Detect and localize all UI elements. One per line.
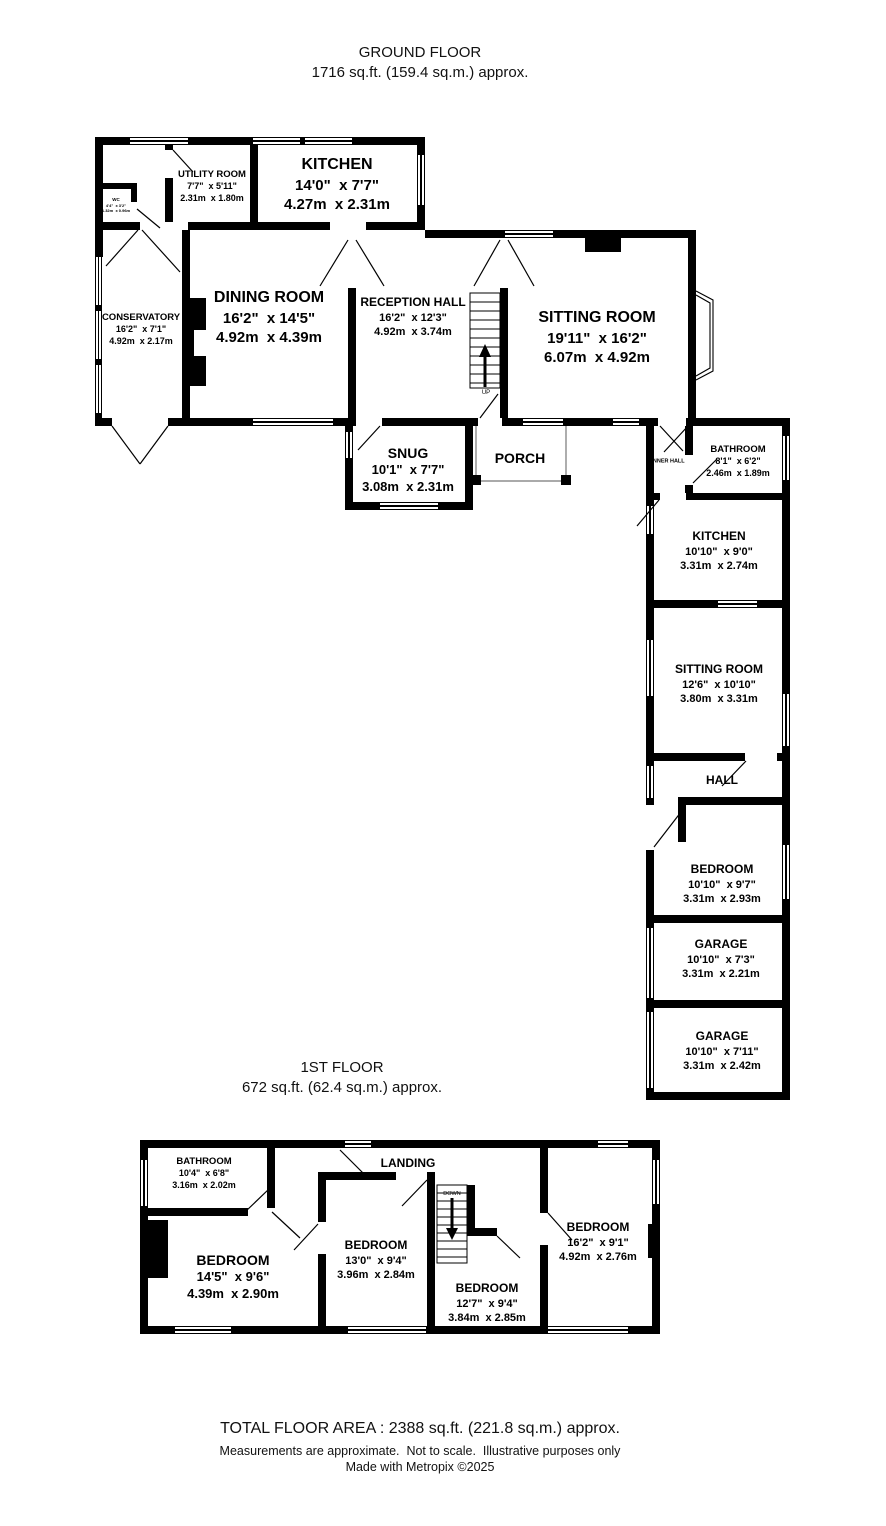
room-name: SITTING ROOM: [538, 308, 655, 329]
room-label-bathroom-ff: BATHROOM 10'4" x 6'8" 3.16m x 2.02m: [172, 1156, 236, 1192]
room-label-bedroom-ff-right: BEDROOM 16'2" x 9'1" 4.92m x 2.76m: [559, 1220, 637, 1264]
room-name: BEDROOM: [187, 1251, 279, 1269]
room-label-bedroom-ff-left: BEDROOM 14'5" x 9'6" 4.39m x 2.90m: [187, 1251, 279, 1303]
room-dims-metric: 3.31m x 2.21m: [682, 967, 760, 981]
room-dims-imperial: 14'5" x 9'6": [187, 1269, 279, 1286]
room-dims-imperial: 10'10" x 7'3": [682, 953, 760, 967]
room-dims-metric: 3.31m x 2.42m: [683, 1059, 761, 1073]
room-name: SITTING ROOM: [675, 662, 763, 678]
room-label-inner-hall: INNER HALL: [651, 458, 684, 465]
room-name: CONSERVATORY: [102, 312, 180, 324]
room-dims-metric: 3.08m x 2.31m: [362, 479, 454, 496]
staircase-up: [470, 293, 500, 388]
room-name: BEDROOM: [337, 1238, 415, 1254]
stairs-up-label: UP: [482, 390, 490, 396]
room-dims-metric: 2.31m x 1.80m: [178, 193, 246, 205]
room-name: PORCH: [495, 449, 546, 467]
room-dims-metric: 4.92m x 4.39m: [214, 328, 324, 348]
room-name: BATHROOM: [706, 444, 770, 456]
room-dims-metric: 4.92m x 2.17m: [102, 336, 180, 348]
room-name: SNUG: [362, 444, 454, 462]
disclaimer: Measurements are approximate. Not to sca…: [220, 1444, 621, 1458]
room-label-utility: UTILITY ROOM 7'7" x 5'11" 2.31m x 1.80m: [178, 169, 246, 205]
room-label-sitting-main: SITTING ROOM 19'11" x 16'2" 6.07m x 4.92…: [538, 308, 655, 368]
room-label-garage1: GARAGE 10'10" x 7'3" 3.31m x 2.21m: [682, 937, 760, 981]
room-name: GARAGE: [682, 937, 760, 953]
room-name: RECEPTION HALL: [360, 295, 465, 311]
room-label-porch: PORCH: [495, 449, 546, 467]
room-name: BEDROOM: [683, 862, 761, 878]
stairs-down-label: DOWN: [443, 1191, 460, 1197]
room-label-dining: DINING ROOM 16'2" x 14'5" 4.92m x 4.39m: [214, 288, 324, 348]
room-dims-imperial: 16'2" x 7'1": [102, 324, 180, 336]
bay-window: [696, 291, 713, 380]
room-dims-metric: 4.92m x 3.74m: [360, 325, 465, 339]
room-label-reception: RECEPTION HALL 16'2" x 12'3" 4.92m x 3.7…: [360, 295, 465, 339]
room-name: UTILITY ROOM: [178, 169, 246, 181]
room-label-conservatory: CONSERVATORY 16'2" x 7'1" 4.92m x 2.17m: [102, 312, 180, 348]
room-dims-metric: 4.92m x 2.76m: [559, 1250, 637, 1264]
room-dims-metric: 3.80m x 3.31m: [675, 692, 763, 706]
room-label-sitting-annex: SITTING ROOM 12'6" x 10'10" 3.80m x 3.31…: [675, 662, 763, 706]
room-label-bedroom-gf: BEDROOM 10'10" x 9'7" 3.31m x 2.93m: [683, 862, 761, 906]
room-dims-metric: 1.32m x 0.96m: [102, 208, 130, 213]
room-label-kitchen-main: KITCHEN 14'0" x 7'7" 4.27m x 2.31m: [284, 155, 390, 215]
room-dims-metric: 3.84m x 2.85m: [448, 1311, 526, 1325]
room-dims-imperial: 10'1" x 7'7": [362, 462, 454, 479]
room-label-bedroom-ff-bottom: BEDROOM 12'7" x 9'4" 3.84m x 2.85m: [448, 1281, 526, 1325]
room-dims-imperial: 16'2" x 9'1": [559, 1236, 637, 1250]
credit: Made with Metropix ©2025: [346, 1460, 495, 1474]
room-label-snug: SNUG 10'1" x 7'7" 3.08m x 2.31m: [362, 444, 454, 496]
room-dims-imperial: 7'7" x 5'11": [178, 181, 246, 193]
room-dims-imperial: 13'0" x 9'4": [337, 1254, 415, 1268]
room-name: BEDROOM: [448, 1281, 526, 1297]
room-label-garage2: GARAGE 10'10" x 7'11" 3.31m x 2.42m: [683, 1029, 761, 1073]
room-dims-imperial: 12'7" x 9'4": [448, 1297, 526, 1311]
room-dims-imperial: 19'11" x 16'2": [538, 329, 655, 349]
total-floor-area: TOTAL FLOOR AREA : 2388 sq.ft. (221.8 sq…: [220, 1420, 620, 1438]
room-name: BEDROOM: [559, 1220, 637, 1236]
floorplan: GROUND FLOOR 1716 sq.ft. (159.4 sq.m.) a…: [0, 0, 886, 1526]
room-name: INNER HALL: [651, 458, 684, 465]
room-dims-imperial: 16'2" x 12'3": [360, 311, 465, 325]
room-label-bedroom-ff-mid: BEDROOM 13'0" x 9'4" 3.96m x 2.84m: [337, 1238, 415, 1282]
room-name: GARAGE: [683, 1029, 761, 1045]
room-dims-imperial: 10'4" x 6'8": [172, 1168, 236, 1180]
room-label-landing: LANDING: [381, 1156, 436, 1172]
room-name: BATHROOM: [172, 1156, 236, 1168]
room-dims-metric: 2.46m x 1.89m: [706, 468, 770, 480]
room-dims-imperial: 10'10" x 9'0": [680, 545, 758, 559]
room-name: KITCHEN: [680, 529, 758, 545]
room-dims-metric: 4.39m x 2.90m: [187, 1286, 279, 1303]
room-dims-metric: 3.31m x 2.74m: [680, 559, 758, 573]
room-dims-metric: 3.96m x 2.84m: [337, 1268, 415, 1282]
room-label-wc: WC 4'4" x 3'2" 1.32m x 0.96m: [102, 197, 130, 213]
room-name: DINING ROOM: [214, 288, 324, 309]
room-label-hall: HALL: [706, 773, 738, 789]
room-dims-imperial: 12'6" x 10'10": [675, 678, 763, 692]
room-dims-metric: 6.07m x 4.92m: [538, 348, 655, 368]
room-dims-imperial: 14'0" x 7'7": [284, 176, 390, 196]
room-dims-metric: 4.27m x 2.31m: [284, 195, 390, 215]
thin-lines-overlay: [0, 0, 886, 1526]
room-name: LANDING: [381, 1156, 436, 1172]
room-label-kitchen-annex: KITCHEN 10'10" x 9'0" 3.31m x 2.74m: [680, 529, 758, 573]
room-dims-metric: 3.16m x 2.02m: [172, 1180, 236, 1192]
room-dims-imperial: 10'10" x 9'7": [683, 878, 761, 892]
room-dims-imperial: 16'2" x 14'5": [214, 309, 324, 329]
room-dims-imperial: 10'10" x 7'11": [683, 1045, 761, 1059]
room-dims-metric: 3.31m x 2.93m: [683, 892, 761, 906]
room-name: HALL: [706, 773, 738, 789]
room-dims-imperial: 8'1" x 6'2": [706, 456, 770, 468]
room-name: KITCHEN: [284, 155, 390, 176]
room-label-bathroom-gf: BATHROOM 8'1" x 6'2" 2.46m x 1.89m: [706, 444, 770, 480]
